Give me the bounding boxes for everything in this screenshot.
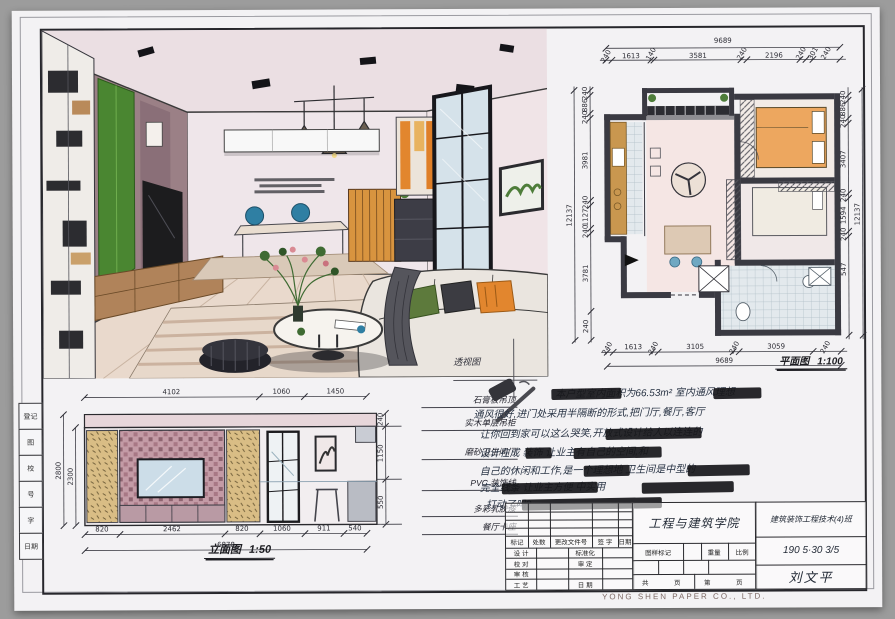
rev-header-mark: 标记 (510, 537, 523, 547)
row-approve: 审 定 (578, 558, 593, 568)
floor-plan-caption-text: 平面图 (779, 356, 809, 367)
edge-box-number: 号 (19, 481, 43, 508)
svg-text:1127: 1127 (582, 208, 590, 226)
note-line: 通风很好,进门处采用半隔断的形式,把门厅,餐厅,客厅 (473, 407, 704, 422)
grid-line (756, 564, 866, 565)
stamp-label: 图样标记 (645, 547, 671, 557)
svg-text:911: 911 (317, 525, 330, 533)
svg-text:3105: 3105 (686, 343, 704, 351)
svg-text:3059: 3059 (767, 343, 785, 351)
row-proof: 校 对 (514, 558, 529, 568)
svg-text:12137: 12137 (854, 203, 862, 225)
svg-text:1594: 1594 (840, 206, 848, 224)
pouf-stool (199, 339, 271, 373)
edge-box-check: 校 (19, 455, 43, 482)
pages-total-label: 共 (642, 577, 649, 587)
redaction-mark (605, 427, 701, 440)
floor-plan: 9689 240 1613 140 3581 240 2196 240 301 … (546, 29, 878, 385)
svg-text:1450: 1450 (326, 387, 344, 395)
svg-text:1060: 1060 (273, 525, 291, 533)
redaction-mark (502, 482, 598, 495)
svg-text:240: 240 (582, 320, 590, 333)
grid-line (701, 543, 702, 560)
rev-header-date: 日期 (618, 536, 631, 546)
rev-header-sign: 签 字 (598, 536, 613, 546)
svg-text:240: 240 (582, 225, 590, 238)
svg-text:240: 240 (839, 91, 847, 104)
svg-text:12137: 12137 (566, 204, 574, 226)
material-label-booth: 餐厅卡座 (422, 521, 518, 535)
elevation-caption: 立面图1:50 (204, 541, 275, 559)
svg-text:240: 240 (581, 87, 589, 100)
row-craft: 工 艺 (514, 579, 529, 589)
signature: 刘文平 (789, 567, 834, 586)
svg-text:2800: 2800 (55, 462, 63, 480)
svg-text:3407: 3407 (839, 150, 847, 168)
svg-text:886: 886 (581, 98, 589, 112)
window (434, 87, 491, 277)
titleblock-revision-grid: 标记 处数 更改文件号 签 字 日期 设 计 标准化 校 对 审 定 审 核 工… (505, 502, 634, 591)
grid-line (536, 548, 537, 590)
floor-plan-scale: 1:100 (817, 356, 843, 367)
class-name: 建筑装饰工程技术(4)班 (770, 514, 852, 525)
svg-text:9689: 9689 (715, 357, 733, 365)
coffee-table (266, 309, 390, 373)
grid-line (694, 574, 695, 589)
svg-text:550: 550 (377, 496, 385, 509)
redaction-mark (642, 481, 734, 494)
edge-box-date: 日期 (19, 533, 43, 560)
svg-text:820: 820 (95, 525, 108, 533)
svg-text:547: 547 (840, 263, 848, 276)
svg-text:240: 240 (839, 189, 847, 202)
svg-text:2300: 2300 (67, 468, 75, 486)
pages-total-unit: 页 (674, 576, 681, 586)
svg-text:9689: 9689 (714, 37, 732, 45)
left-cabinet-strip (42, 31, 96, 379)
svg-text:240: 240 (819, 46, 833, 62)
svg-text:3781: 3781 (582, 264, 590, 282)
svg-text:2196: 2196 (765, 52, 783, 60)
pages-current-unit: 页 (736, 576, 743, 586)
school-name: 工程与建筑学院 (648, 514, 739, 531)
row-date: 日 期 (578, 579, 593, 589)
edge-box-sign: 字 (19, 507, 43, 534)
svg-text:240: 240 (647, 340, 661, 356)
balcony (647, 94, 729, 115)
grid-line (728, 543, 729, 560)
wood-slat-partition (348, 189, 400, 261)
rev-header-doc: 更改文件号 (555, 536, 588, 546)
redaction-mark (713, 387, 761, 399)
grid-line (633, 560, 756, 562)
grid-line (683, 543, 684, 560)
grid-line (506, 527, 633, 529)
grid-line (756, 536, 866, 537)
svg-text:3981: 3981 (581, 151, 589, 169)
svg-text:140: 140 (644, 46, 658, 62)
svg-text:240: 240 (728, 340, 742, 356)
orange-backlit-panel (396, 117, 438, 195)
plant-picture-frame (500, 161, 542, 215)
grid-line (506, 519, 633, 521)
svg-text:1613: 1613 (622, 52, 640, 60)
paper-watermark: YONG SHEN PAPER CO., LTD. (484, 591, 884, 602)
scale-label: 比例 (736, 546, 749, 556)
scanned-drawing-sheet: { "sheet": { "edge_labels": ["登记", "图", … (0, 0, 895, 619)
elevation-wall (84, 413, 376, 525)
titleblock-right: 建筑装饰工程技术(4)班 190 5·30 3/5 刘文平 (755, 501, 867, 589)
grid-line (550, 504, 551, 548)
grid-line (708, 560, 709, 574)
svg-text:1150: 1150 (377, 444, 385, 462)
redaction-mark (688, 464, 750, 476)
elevation-caption-text: 立面图 (208, 544, 241, 556)
grid-line (602, 547, 603, 589)
rev-header-count: 处数 (532, 537, 545, 547)
edge-box-drawing: 图 (19, 429, 43, 456)
redaction-mark (526, 447, 552, 458)
grid-line (528, 504, 529, 548)
row-design: 设 计 (514, 548, 529, 558)
grid-line (658, 560, 659, 574)
svg-text:3581: 3581 (689, 52, 707, 60)
svg-text:240: 240 (376, 413, 384, 426)
svg-text:240: 240 (840, 228, 848, 241)
date-code: 190 5·30 3/5 (783, 545, 839, 556)
row-review: 审 核 (514, 569, 529, 579)
elevation-scale: 1:50 (249, 544, 271, 556)
svg-text:301: 301 (806, 46, 820, 62)
svg-text:540: 540 (348, 524, 361, 532)
redaction-mark (574, 446, 662, 459)
weight-label: 重量 (708, 546, 721, 556)
grid-line (683, 560, 684, 574)
svg-text:1613: 1613 (624, 343, 642, 351)
redaction-mark (551, 388, 621, 400)
grid-line (592, 503, 593, 547)
perspective-rendering (42, 29, 549, 379)
pages-current-label: 第 (704, 576, 711, 586)
svg-text:1060: 1060 (272, 388, 290, 396)
grid-line (568, 547, 569, 589)
svg-text:886: 886 (839, 102, 847, 116)
svg-text:2462: 2462 (163, 525, 181, 533)
svg-text:820: 820 (235, 525, 248, 533)
design-notes: 本户型室内面积为66.53m² 室内通风理想 通风很好,进门处采用半隔断的形式,… (455, 380, 766, 513)
svg-text:240: 240 (582, 196, 590, 209)
row-standard: 标准化 (575, 547, 595, 557)
grid-line (506, 511, 633, 513)
svg-text:240: 240 (581, 111, 589, 124)
floor-plan-caption: 平面图1:100 (775, 352, 847, 369)
svg-text:240: 240 (839, 115, 847, 128)
edge-box-register: 登记 (18, 403, 42, 430)
titleblock-center: 工程与建筑学院 图样标记 重量 比例 共 页 第 页 (632, 502, 757, 591)
perspective-caption: 透视图 (453, 355, 480, 368)
paper-sheet: 登记 图 校 号 字 日期 (12, 7, 883, 611)
svg-text:4102: 4102 (162, 388, 180, 396)
grid-line (633, 543, 756, 545)
redaction-mark (584, 465, 630, 477)
